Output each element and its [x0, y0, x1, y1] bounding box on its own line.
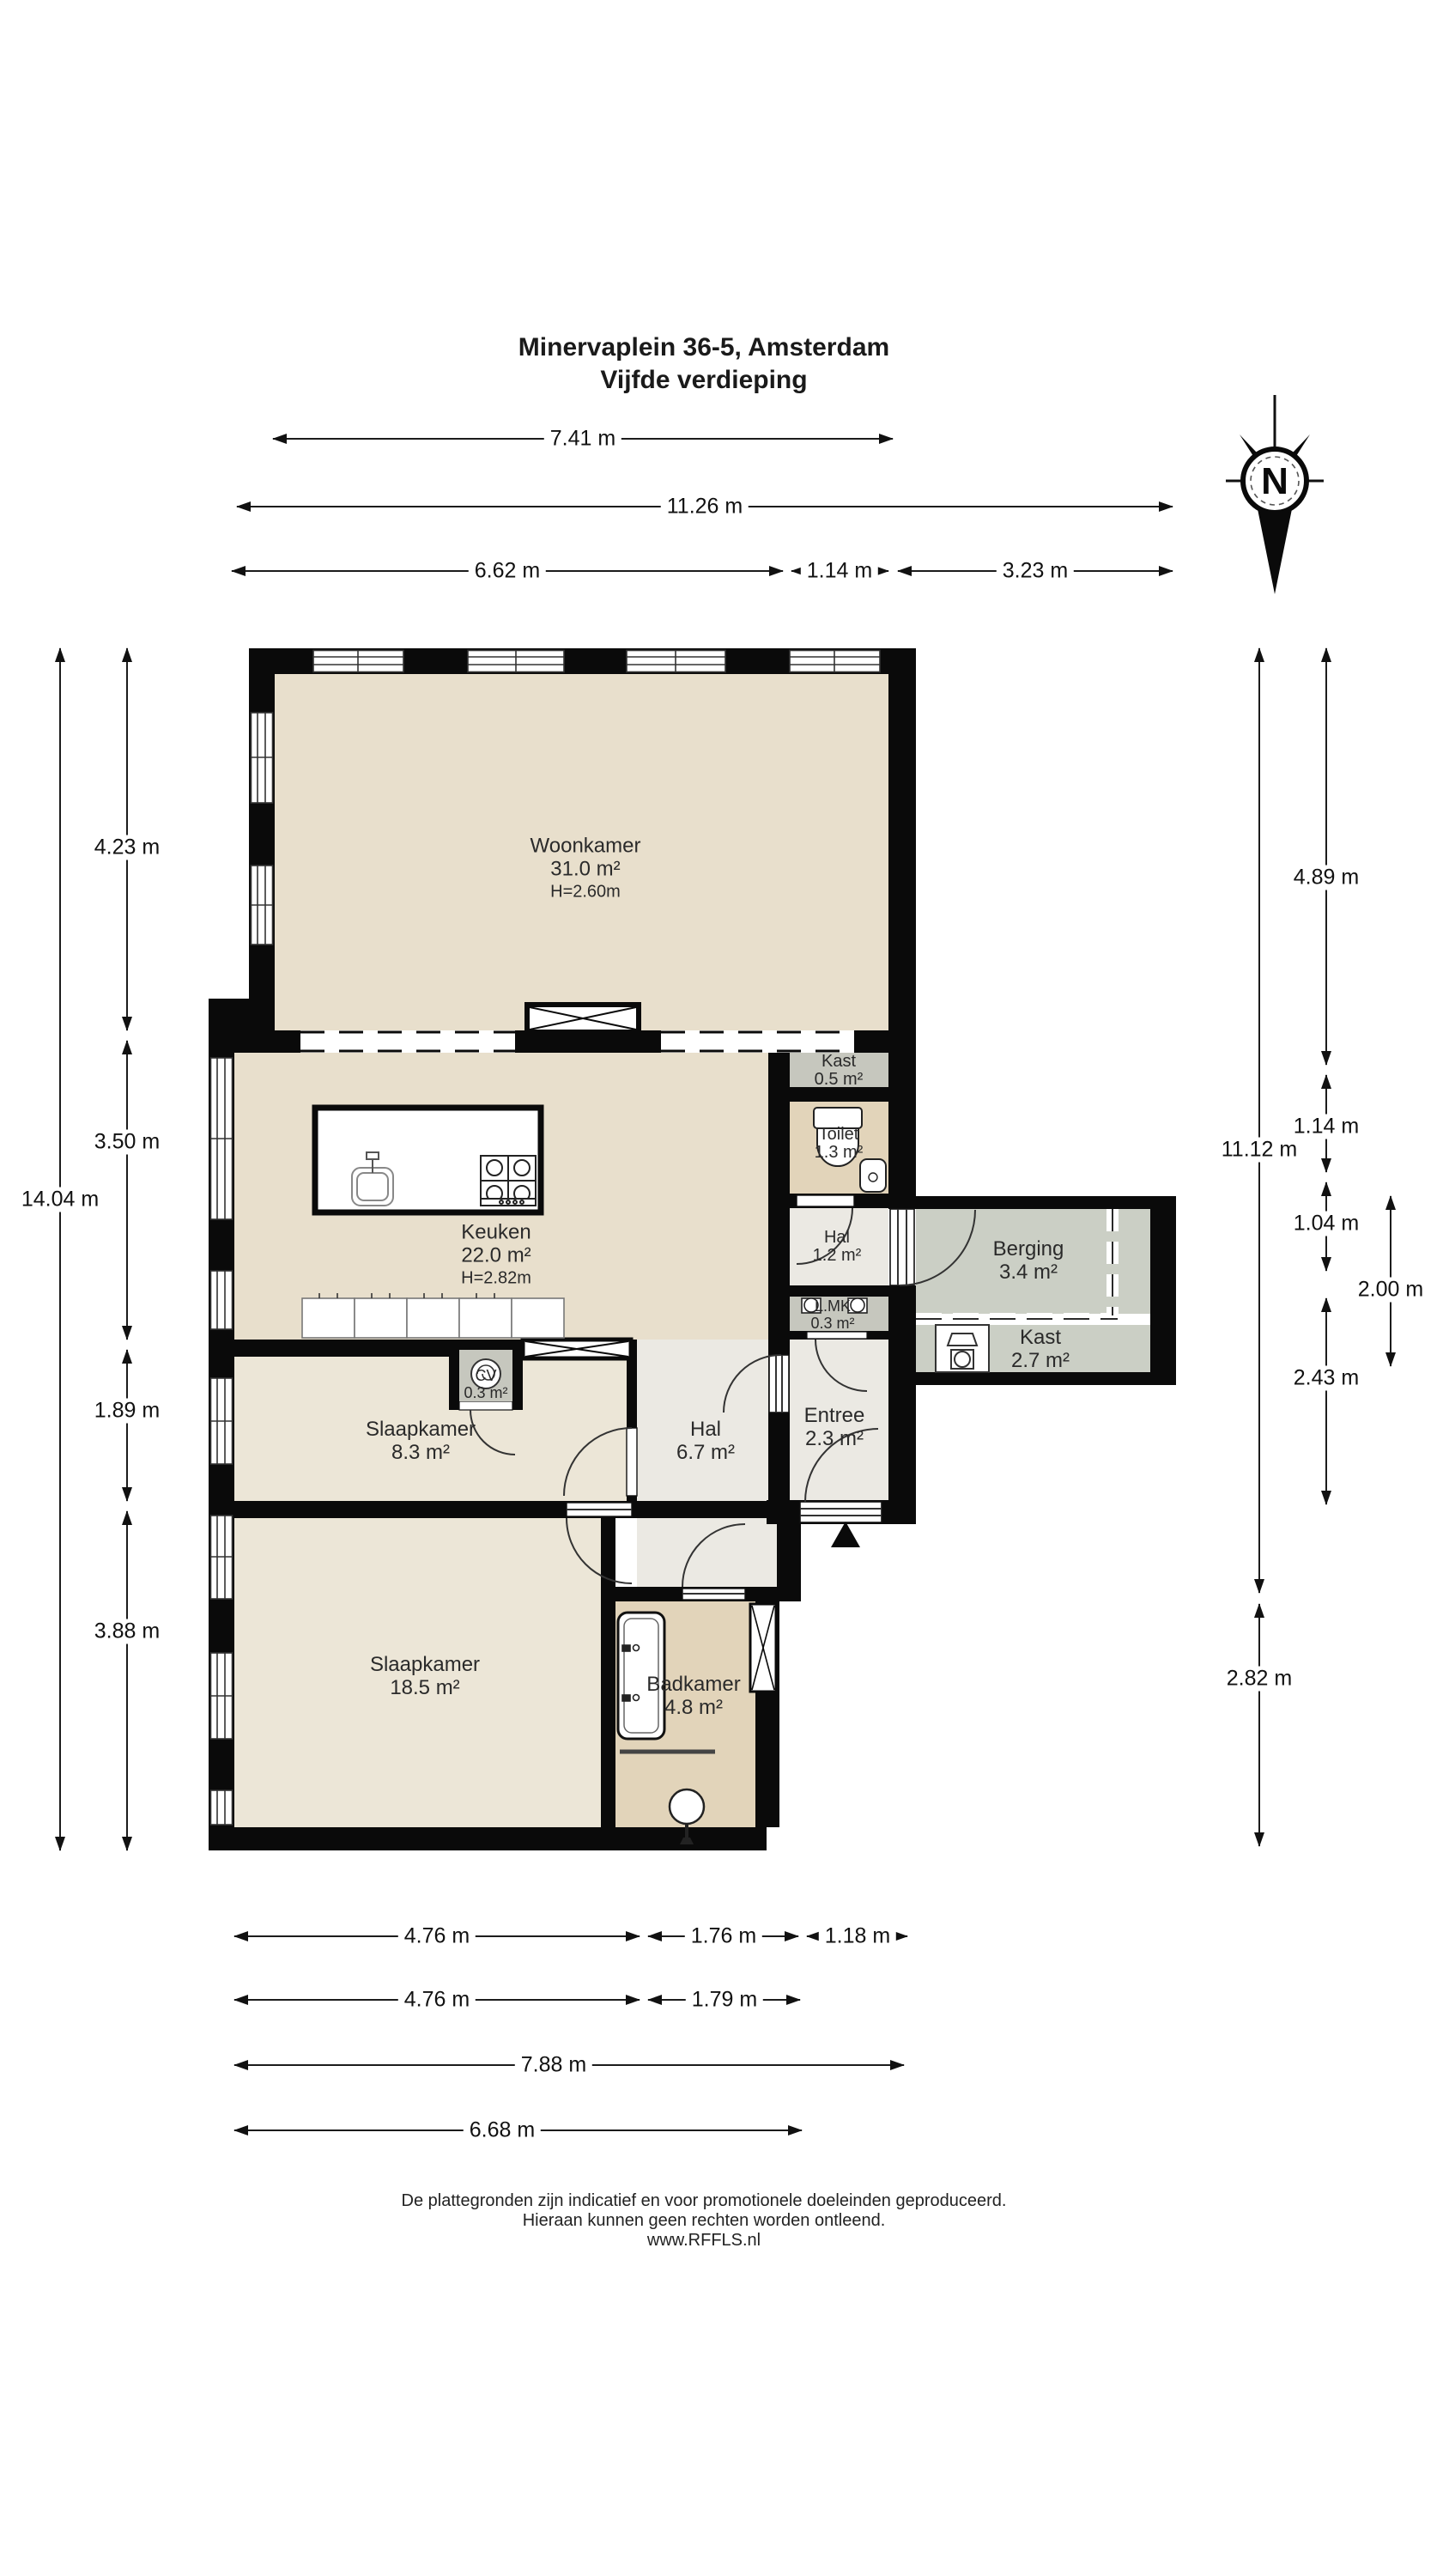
window-top-2: [468, 651, 564, 672]
washing-machine-icon: [936, 1325, 989, 1372]
window-top-1: [313, 651, 403, 672]
label-cv: CV 0.3 m²: [464, 1367, 507, 1401]
dim-bottom-4_76b: 4.76 m: [398, 1988, 476, 2013]
fontein-icon: [860, 1159, 886, 1192]
label-lmk: L.MK 0.3 m²: [810, 1297, 854, 1332]
dim-right-2_43: 2.43 m: [1288, 1366, 1365, 1391]
label-badkamer: Badkamer 4.8 m²: [646, 1673, 740, 1719]
dim-left-4_23: 4.23 m: [88, 835, 166, 860]
label-kast-klein: Kast 0.5 m²: [815, 1053, 864, 1089]
dim-bottom-7_88: 7.88 m: [515, 2053, 592, 2078]
shaft-badkamer: [750, 1604, 776, 1692]
dim-top-3_23: 3.23 m: [997, 559, 1074, 584]
window-top-3: [627, 651, 725, 672]
floorplan-page: N Minervaplein 36-5, Amsterdam Vijfde ve…: [0, 0, 1449, 2576]
dim-top-7_41: 7.41 m: [544, 427, 621, 452]
dim-top-11_26: 11.26 m: [661, 495, 749, 519]
dim-bottom-1_76: 1.76 m: [685, 1924, 762, 1949]
disclaimer-line-1: De plattegronden zijn indicatief en voor…: [0, 2191, 1408, 2211]
window-left-4: [211, 1516, 233, 1599]
label-berging: Berging 3.4 m²: [993, 1237, 1064, 1284]
label-keuken: Keuken 22.0 m² H=2.82m: [461, 1221, 531, 1291]
title-address: Minervaplein 36-5, Amsterdam: [0, 331, 1408, 364]
label-kast-groot: Kast 2.7 m²: [1011, 1326, 1070, 1372]
disclaimer-website: www.RFFLS.nl: [0, 2231, 1408, 2251]
window-left-2: [211, 1271, 233, 1329]
dim-right-1_14: 1.14 m: [1288, 1115, 1365, 1139]
label-slaapkamer-klein: Slaapkamer 8.3 m²: [366, 1418, 476, 1464]
disclaimer: De plattegronden zijn indicatief en voor…: [0, 2191, 1408, 2251]
kitchen-counter: [302, 1293, 564, 1338]
title-floor: Vijfde verdieping: [0, 364, 1408, 397]
dim-top-1_14: 1.14 m: [801, 559, 878, 584]
dim-bottom-1_18: 1.18 m: [819, 1924, 896, 1949]
window-left-1: [211, 1058, 233, 1219]
dim-right-2_00: 2.00 m: [1352, 1278, 1429, 1303]
label-slaapkamer-groot: Slaapkamer 18.5 m²: [370, 1653, 480, 1699]
kitchen-island: [315, 1108, 541, 1212]
shaft-woonkamer: [527, 1005, 639, 1032]
disclaimer-line-2: Hieraan kunnen geen rechten worden ontle…: [0, 2211, 1408, 2231]
dim-right-4_89: 4.89 m: [1288, 866, 1365, 890]
window-left-upper-1: [252, 713, 273, 803]
dim-bottom-6_68: 6.68 m: [464, 2118, 541, 2143]
stove-icon: [481, 1156, 536, 1206]
dim-bottom-1_79: 1.79 m: [686, 1988, 763, 2013]
label-entree: Entree 2.3 m²: [804, 1404, 865, 1450]
window-left-3: [211, 1378, 233, 1464]
window-top-4: [790, 651, 880, 672]
label-hal-groot: Hal 6.7 m²: [676, 1418, 735, 1464]
window-left-5: [211, 1653, 233, 1739]
dim-right-2_82: 2.82 m: [1221, 1667, 1298, 1692]
dim-bottom-4_76a: 4.76 m: [398, 1924, 476, 1949]
label-woonkamer: Woonkamer 31.0 m² H=2.60m: [530, 835, 641, 904]
window-left-6: [211, 1790, 233, 1825]
page-title: Minervaplein 36-5, Amsterdam Vijfde verd…: [0, 331, 1408, 397]
compass-label: N: [1261, 460, 1288, 502]
dim-top-6_62: 6.62 m: [469, 559, 546, 584]
window-left-upper-2: [252, 866, 273, 945]
shaft-keuken: [523, 1340, 631, 1358]
dim-right-11_12: 11.12 m: [1216, 1138, 1303, 1163]
dim-left-3_88: 3.88 m: [88, 1619, 166, 1644]
label-toilet: Toilet 1.3 m²: [815, 1126, 864, 1162]
dim-left-1_89: 1.89 m: [88, 1399, 166, 1424]
dim-left-3_50: 3.50 m: [88, 1130, 166, 1155]
label-hal-klein: Hal 1.2 m²: [813, 1229, 862, 1265]
dim-left-14_04: 14.04 m: [15, 1188, 105, 1212]
dim-right-1_04: 1.04 m: [1288, 1212, 1365, 1236]
entrance-marker: [831, 1522, 860, 1547]
north-arrow-icon: N: [1226, 395, 1324, 594]
